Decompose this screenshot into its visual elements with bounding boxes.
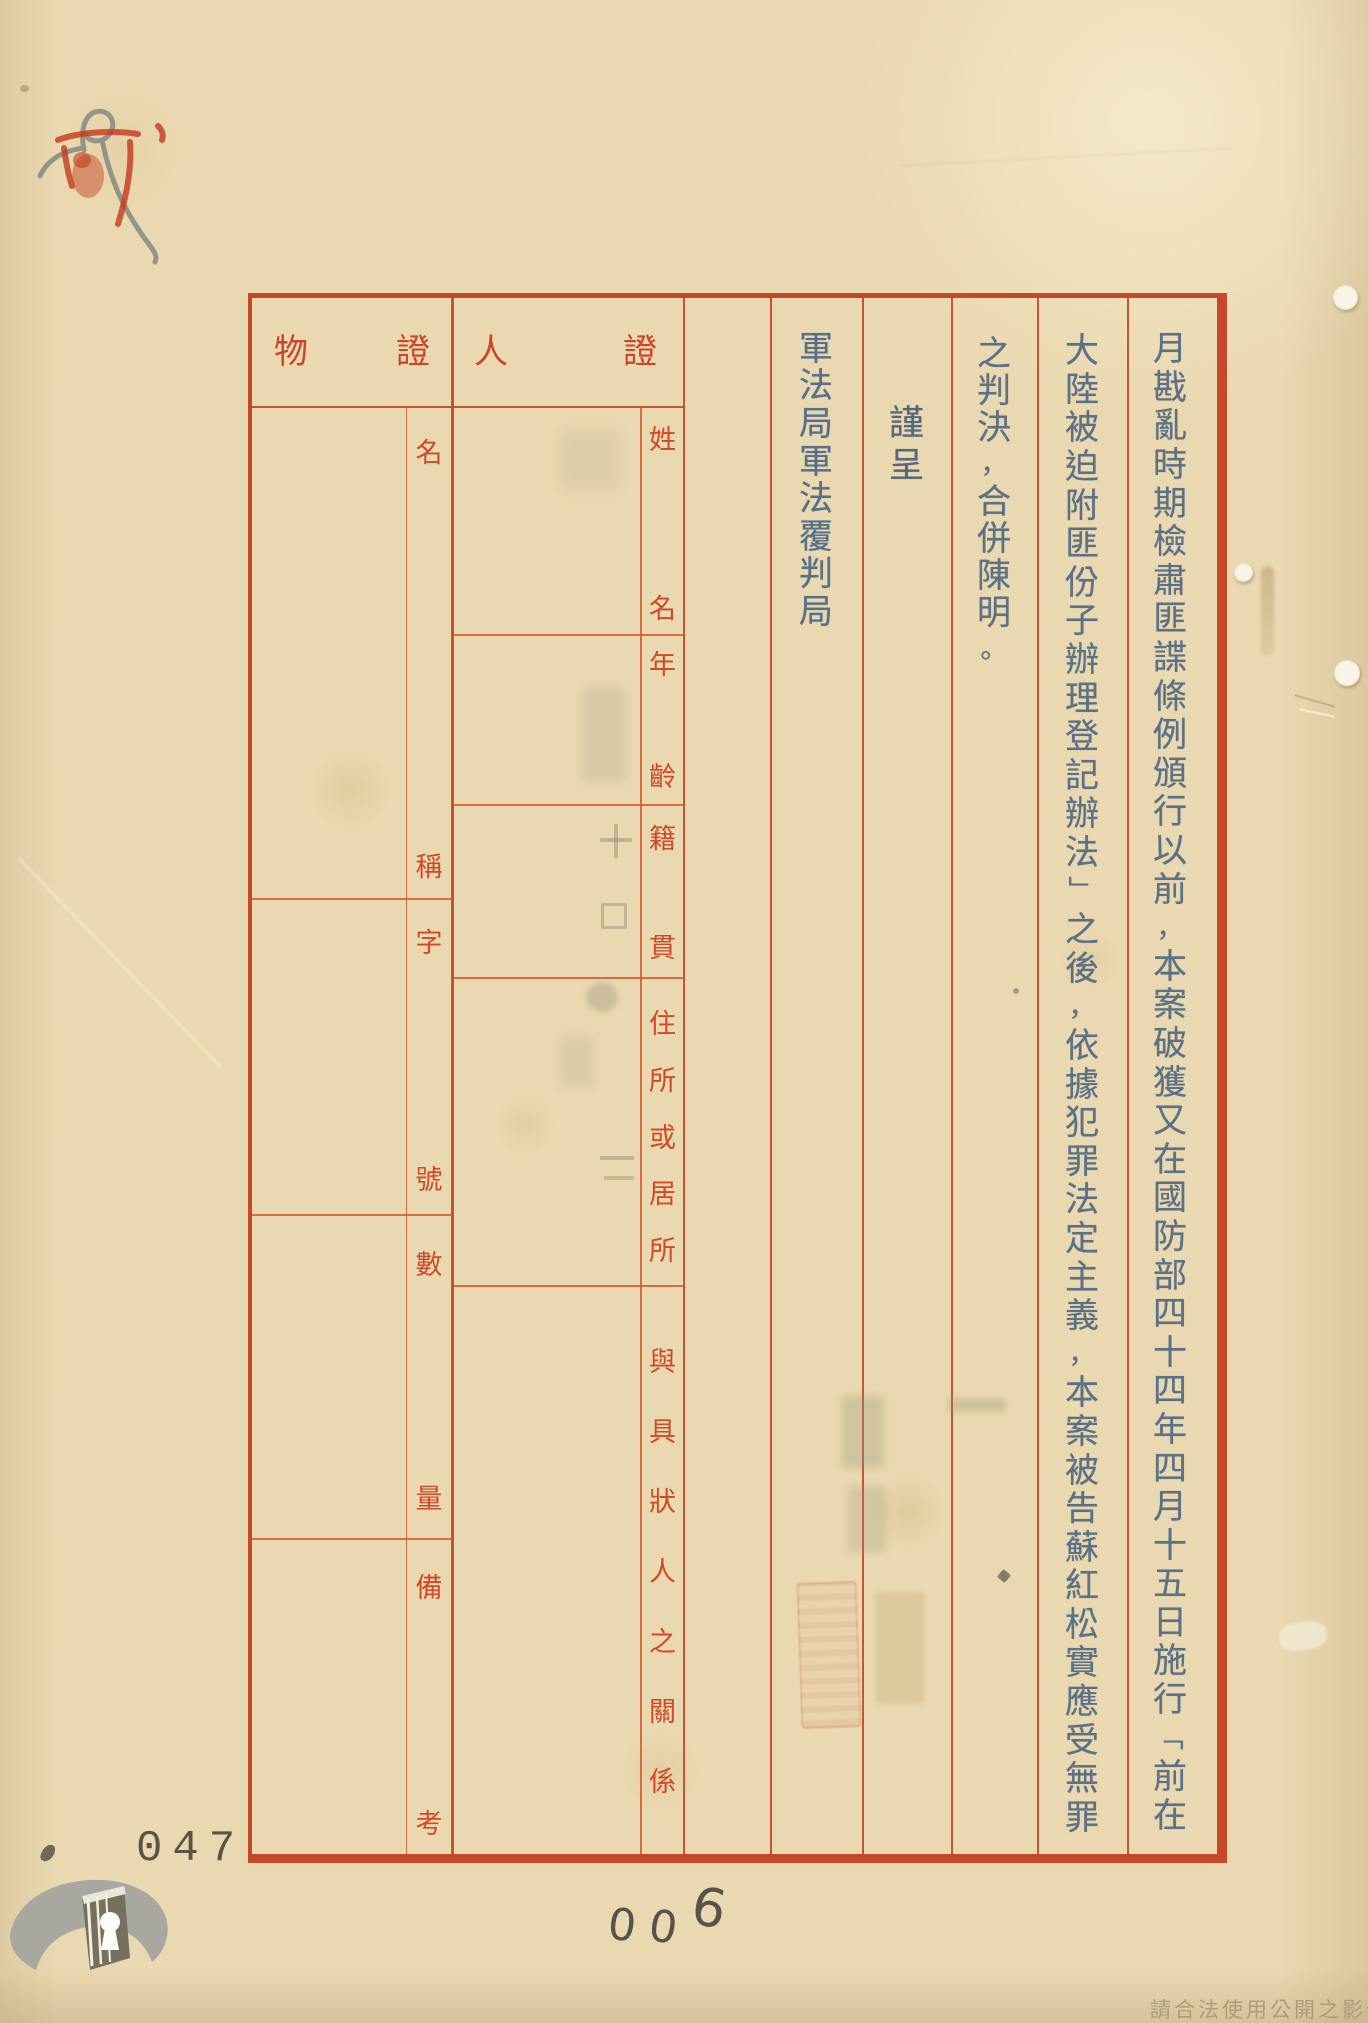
glyph: 時 [1127, 446, 1213, 485]
glyph: 蘇 [1037, 1528, 1127, 1567]
usage-watermark: 請合法使用公開之影像 [1150, 1994, 1368, 2023]
glyph: 紅 [1037, 1567, 1127, 1606]
glyph: 軍 [770, 330, 862, 368]
object-label-remarks: 備考 [406, 1538, 452, 1854]
glyph: 頒 [1127, 755, 1213, 794]
faint-seal-bleedthrough [876, 1592, 924, 1704]
glyph: 實 [1037, 1644, 1127, 1683]
glyph: 十 [1127, 1526, 1213, 1565]
glyph: 大 [1037, 332, 1127, 371]
glyph: 或 [649, 1125, 676, 1152]
bleedthrough-smudge [560, 1035, 594, 1087]
glyph: 陳 [951, 557, 1037, 594]
glyph: 人 [474, 335, 508, 369]
glyph: 法 [1037, 834, 1127, 873]
glyph: 齡 [649, 764, 676, 791]
glyph: 係 [649, 1769, 676, 1796]
glyph: 物 [274, 335, 308, 369]
paper-tear [1277, 1619, 1328, 1653]
glyph: 四 [1127, 1372, 1213, 1411]
glyph: 施 [1127, 1642, 1213, 1681]
glyph: 證 [396, 335, 430, 369]
form-line-v-col4 [862, 298, 864, 1854]
glyph: 具 [649, 1419, 676, 1446]
bleedthrough-smudge [560, 430, 620, 490]
glyph: 罪 [1037, 1142, 1127, 1181]
glyph: 姓 [649, 427, 676, 454]
glyph: 十 [1127, 1333, 1213, 1372]
glyph: 行 [1127, 1681, 1213, 1720]
person-label-residence: 住所或居所 [641, 977, 684, 1285]
glyph: 破 [1127, 1025, 1213, 1064]
punch-hole-icon [1334, 660, 1360, 686]
glyph: 局 [770, 593, 862, 631]
glyph: 。 [951, 631, 1037, 668]
paper-crease [900, 147, 1230, 166]
glyph: 無 [1037, 1760, 1127, 1799]
petition-text-column-2: 大陸被迫附匪份子辦理登記辦法﹂之後，依據犯罪法定主義，本案被告蘇紅松實應受無罪 [1037, 332, 1127, 1837]
glyph: 之 [649, 1629, 676, 1656]
glyph: 記 [1037, 757, 1127, 796]
document-page: 物證 人證 名稱 字號 數量 備考 姓名 年齡 籍貫 住所或居所 與具狀人之關係… [0, 0, 1368, 2023]
glyph: 局 [770, 405, 862, 443]
glyph: 法 [770, 480, 862, 518]
paper-crease [1299, 708, 1335, 717]
glyph: 亂 [1127, 407, 1213, 446]
glyph: 號 [416, 1167, 443, 1194]
bleedthrough-smudge [842, 1396, 884, 1468]
glyph: 部 [1127, 1256, 1213, 1295]
glyph: 義 [1037, 1297, 1127, 1336]
glyph: 關 [649, 1699, 676, 1726]
glyph: 0 [646, 1904, 681, 1952]
stain-streak [1261, 566, 1274, 656]
glyph: 住 [649, 1011, 676, 1038]
petition-text-column-3: 之判決，合併陳明。 [951, 335, 1037, 668]
glyph: 年 [649, 652, 676, 679]
glyph: 貫 [649, 935, 676, 962]
glyph: 案 [1127, 986, 1213, 1025]
header-object-evidence: 物證 [252, 299, 452, 405]
faint-red-seal-imprint [796, 1581, 861, 1729]
glyph: 考 [416, 1811, 443, 1838]
glyph: 決 [951, 409, 1037, 446]
glyph: 呈 [862, 444, 951, 486]
glyph: 例 [1127, 716, 1213, 755]
glyph: 籍 [649, 826, 676, 853]
bleedthrough-smudge [848, 1486, 886, 1552]
glyph: 月 [1127, 1488, 1213, 1527]
glyph: 數 [416, 1252, 443, 1279]
glyph: 辦 [1037, 795, 1127, 834]
glyph: 覆 [770, 518, 862, 556]
glyph: 所 [649, 1238, 676, 1265]
person-label-name: 姓名 [641, 408, 684, 634]
glyph: 居 [649, 1181, 676, 1208]
bleedthrough-mark [600, 838, 632, 842]
paper-crease [1295, 694, 1336, 707]
glyph: 諜 [1127, 639, 1213, 678]
glyph: 日 [1127, 1604, 1213, 1643]
bleedthrough-mark [604, 1176, 634, 1180]
glyph: 在 [1127, 1140, 1213, 1179]
glyph: 本 [1127, 948, 1213, 987]
bleedthrough-mark [600, 1156, 634, 1160]
form-line-h-header [252, 406, 684, 408]
header-person-evidence: 人證 [454, 299, 683, 405]
glyph: 法 [770, 368, 862, 406]
glyph: 登 [1037, 718, 1127, 757]
glyph: 字 [416, 930, 443, 957]
glyph: ， [1127, 909, 1213, 948]
glyph: 判 [951, 372, 1037, 409]
glyph: 月 [1127, 330, 1213, 369]
glyph: 與 [649, 1349, 676, 1376]
glyph: 匪 [1037, 525, 1127, 564]
glyph: 迫 [1037, 448, 1127, 487]
glyph: 所 [649, 1068, 676, 1095]
glyph: 理 [1037, 679, 1127, 718]
glyph: 告 [1037, 1490, 1127, 1529]
archive-number-stamp: 047 [136, 1824, 245, 1874]
ink-speck [1013, 988, 1019, 994]
glyph: 軍 [770, 443, 862, 481]
glyph: 被 [1037, 1451, 1127, 1490]
glyph: 以 [1127, 832, 1213, 871]
glyph: 在 [1127, 1797, 1213, 1836]
glyph: 期 [1127, 484, 1213, 523]
glyph: 四 [1127, 1295, 1213, 1334]
ink-speck [39, 1842, 57, 1863]
glyph: 獲 [1127, 1063, 1213, 1102]
salutation-column: 謹呈 [862, 402, 951, 486]
glyph: 條 [1127, 677, 1213, 716]
glyph: 防 [1127, 1218, 1213, 1257]
bleedthrough-smudge [586, 982, 618, 1012]
pencil-page-number: 006 [604, 1882, 734, 1962]
glyph: 併 [951, 520, 1037, 557]
glyph: 匪 [1127, 600, 1213, 639]
punch-hole-icon [1234, 563, 1253, 582]
object-label-quantity: 數量 [406, 1214, 452, 1538]
glyph: 附 [1037, 486, 1127, 525]
glyph: 案 [1037, 1413, 1127, 1452]
glyph: 法 [1037, 1181, 1127, 1220]
glyph: 前 [1127, 870, 1213, 909]
glyph: ﹁ [1127, 1719, 1213, 1758]
glyph: 本 [1037, 1374, 1127, 1413]
glyph: 犯 [1037, 1104, 1127, 1143]
glyph: 應 [1037, 1683, 1127, 1722]
glyph: ﹂ [1037, 872, 1127, 911]
glyph: 辦 [1037, 641, 1127, 680]
recipient-column: 軍法局軍法覆判局 [770, 330, 862, 631]
glyph: 松 [1037, 1606, 1127, 1645]
object-label-name-title: 名稱 [406, 408, 452, 898]
person-label-age: 年齡 [641, 634, 684, 804]
glyph: 四 [1127, 1449, 1213, 1488]
paper-speck [20, 85, 29, 92]
red-seal-and-pencil-scribble-icon [18, 58, 248, 278]
object-label-serial: 字號 [406, 898, 452, 1214]
glyph: 又 [1127, 1102, 1213, 1141]
glyph: 明 [951, 594, 1037, 631]
glyph: 量 [416, 1486, 443, 1513]
glyph: 主 [1037, 1258, 1127, 1297]
glyph: 定 [1037, 1220, 1127, 1259]
bleedthrough-smudge [948, 1398, 1006, 1412]
glyph: 證 [623, 335, 657, 369]
glyph: 後 [1037, 950, 1127, 989]
glyph: 被 [1037, 409, 1127, 448]
glyph: 依 [1037, 1027, 1127, 1066]
glyph: 子 [1037, 602, 1127, 641]
glyph: 份 [1037, 564, 1127, 603]
glyph: 國 [1127, 1179, 1213, 1218]
glyph: 行 [1127, 793, 1213, 832]
punch-hole-icon [1333, 285, 1358, 310]
glyph: 據 [1037, 1065, 1127, 1104]
glyph: 人 [649, 1559, 676, 1586]
glyph: 前 [1127, 1758, 1213, 1797]
paper-crease [19, 858, 222, 1068]
glyph: 年 [1127, 1411, 1213, 1450]
archives-book-logo-icon [4, 1874, 184, 1992]
person-label-relation: 與具狀人之關係 [641, 1285, 684, 1854]
glyph: 謹 [862, 402, 951, 444]
glyph: 肅 [1127, 562, 1213, 601]
glyph: 狀 [649, 1489, 676, 1516]
glyph: 之 [1037, 911, 1127, 950]
glyph: 陸 [1037, 371, 1127, 410]
glyph: 戡 [1127, 369, 1213, 408]
glyph: 備 [416, 1575, 443, 1602]
bleedthrough-smudge [582, 686, 626, 782]
glyph: 罪 [1037, 1799, 1127, 1838]
glyph: 五 [1127, 1565, 1213, 1604]
glyph: 稱 [416, 854, 443, 881]
glyph: 合 [951, 483, 1037, 520]
glyph: 名 [416, 440, 443, 467]
glyph: 之 [951, 335, 1037, 372]
glyph: 6 [687, 1879, 730, 1937]
glyph: 受 [1037, 1721, 1127, 1760]
glyph: 判 [770, 556, 862, 594]
petition-text-column-1: 月戡亂時期檢肅匪諜條例頒行以前，本案破獲又在國防部四十四年四月十五日施行﹁前在 [1127, 330, 1213, 1835]
glyph: 名 [649, 596, 676, 623]
glyph: 0 [605, 1902, 638, 1949]
glyph: ， [951, 446, 1037, 483]
glyph: 檢 [1127, 523, 1213, 562]
bleedthrough-mark [601, 903, 627, 929]
person-label-origin: 籍貫 [641, 804, 684, 977]
glyph: ， [1037, 1335, 1127, 1374]
glyph: ， [1037, 988, 1127, 1027]
